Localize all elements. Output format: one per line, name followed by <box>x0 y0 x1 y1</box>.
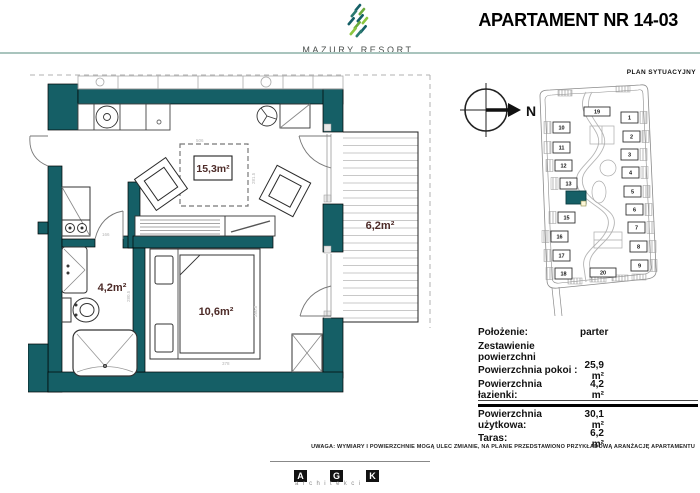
siteplan-green-features <box>590 126 622 248</box>
siteplan-parking-2 <box>642 131 649 143</box>
toilet-icon <box>62 298 99 322</box>
page-title: APARTAMENT NR 14-03 <box>478 10 678 31</box>
bathroom-area-label: 4,2m² <box>98 282 127 294</box>
wardrobe-icon <box>292 334 322 372</box>
siteplan-building-number: 16 <box>556 235 562 241</box>
tv-sideboard <box>135 216 275 236</box>
apartment-plan-sheet: MAZURY RESORT APARTAMENT NR 14-03 <box>0 0 700 493</box>
bedroom: 10,6m² <box>150 249 322 372</box>
siteplan-parking-1 <box>640 112 647 124</box>
siteplan-parking-8 <box>649 241 656 253</box>
pine-tree-logo-icon <box>338 2 378 39</box>
siteplan-building-number: 9 <box>638 264 641 270</box>
siteplan-building-number: 19 <box>594 110 600 116</box>
svg-text:280.5: 280.5 <box>253 305 258 317</box>
siteplan-building-number: 7 <box>635 226 638 232</box>
siteplan-building-number: 17 <box>558 254 564 260</box>
siteplan-parking-16 <box>542 231 549 243</box>
siteplan-title: PLAN SYTUACYJNY <box>627 69 696 76</box>
table-row: Powierzchnia pokoi : 25,9 m² <box>478 361 698 380</box>
siteplan-building-number: 18 <box>560 272 566 278</box>
svg-text:378: 378 <box>222 361 230 366</box>
armchair <box>259 165 310 216</box>
siteplan-building-number: 2 <box>630 135 633 141</box>
bed-icon <box>150 249 260 359</box>
siteplan-internal-road <box>576 92 614 282</box>
siteplan-building-number: 12 <box>560 164 566 170</box>
kitchen-appliances <box>257 104 310 128</box>
row-value: parter <box>580 327 698 338</box>
site-plan: 12345678910111213151617181920 <box>528 76 700 318</box>
siteplan-parking-6 <box>645 204 652 216</box>
row-label: Taras: <box>478 433 580 444</box>
table-row: Powierzchnia łazienki: 4,2 m² <box>478 380 698 399</box>
siteplan-building-number: 5 <box>631 190 634 196</box>
area-summary-table: Położenie: parter Zestawienie powierzchn… <box>478 323 698 448</box>
row-label: Powierzchnia pokoi : <box>478 365 580 376</box>
bathroom: 4,2m² <box>62 247 137 376</box>
row-label: Powierzchnia łazienki: <box>478 379 580 401</box>
shower-icon <box>73 330 137 376</box>
row-label: Powierzchnia użytkowa: <box>478 409 580 431</box>
table-row: Zestawienie powierzchni <box>478 342 698 361</box>
siteplan-parking-7 <box>647 222 654 234</box>
siteplan-building-number: 3 <box>628 153 631 159</box>
siteplan-building-number: 20 <box>600 271 606 277</box>
living-area-label: 15,3m² <box>196 163 230 175</box>
bedroom-area-label: 10,6m² <box>199 306 234 318</box>
siteplan-parking-11 <box>544 142 551 154</box>
living-room: 15,3m² <box>135 144 311 236</box>
header-divider <box>0 52 700 54</box>
siteplan-building-number: 11 <box>559 146 565 152</box>
siteplan-building-number: 10 <box>558 126 564 132</box>
siteplan-parking-13 <box>551 178 558 190</box>
siteplan-parking-9 <box>650 260 657 272</box>
floor-plan: 15,3m² 4,2m² <box>28 62 452 434</box>
kitchen-upper-cabinets <box>78 76 343 89</box>
row-value: 4,2 m² <box>580 379 698 401</box>
terrace-area-label: 6,2m² <box>366 220 395 232</box>
svg-text:281.5: 281.5 <box>251 172 256 184</box>
siteplan-buildings: 12345678910111213151617181920 <box>542 107 657 280</box>
mazury-resort-logo: MAZURY RESORT <box>300 2 416 55</box>
siteplan-parking-15 <box>549 212 556 224</box>
row-label: Położenie: <box>478 327 580 338</box>
siteplan-building-number: 8 <box>637 245 640 251</box>
siteplan-building-number: 1 <box>628 116 631 122</box>
svg-text:166: 166 <box>102 232 110 237</box>
siteplan-building-number: 13 <box>565 182 571 188</box>
washbasin-icon <box>62 247 87 293</box>
svg-text:280.5: 280.5 <box>126 290 131 302</box>
table-rule-thick <box>478 404 698 407</box>
siteplan-building-number: 6 <box>633 208 636 214</box>
kitchen-counter <box>78 104 170 130</box>
row-label: Zestawienie powierzchni <box>478 341 580 363</box>
siteplan-parking-5 <box>643 186 650 198</box>
footer-divider <box>270 461 430 462</box>
siteplan-parking-17 <box>544 250 551 262</box>
siteplan-parking-10 <box>544 122 551 134</box>
agk-letter: K <box>366 470 379 482</box>
siteplan-parking-3 <box>640 149 647 161</box>
svg-text:506: 506 <box>196 138 204 143</box>
table-row: Położenie: parter <box>478 323 698 342</box>
siteplan-parking-12 <box>546 160 553 172</box>
agk-subtitle: architekci <box>295 481 364 487</box>
siteplan-parking-4 <box>641 167 648 179</box>
disclaimer-note: UWAGA: WYMIARY I POWIERZCHNIE MOGĄ ULEC … <box>311 444 695 450</box>
siteplan-building-annex <box>581 201 586 206</box>
washer-cabinet-icon <box>62 187 90 236</box>
siteplan-building-number: 15 <box>563 216 569 222</box>
siteplan-parking-18 <box>546 268 553 280</box>
table-row: Powierzchnia użytkowa: 30,1 m² <box>478 410 698 429</box>
